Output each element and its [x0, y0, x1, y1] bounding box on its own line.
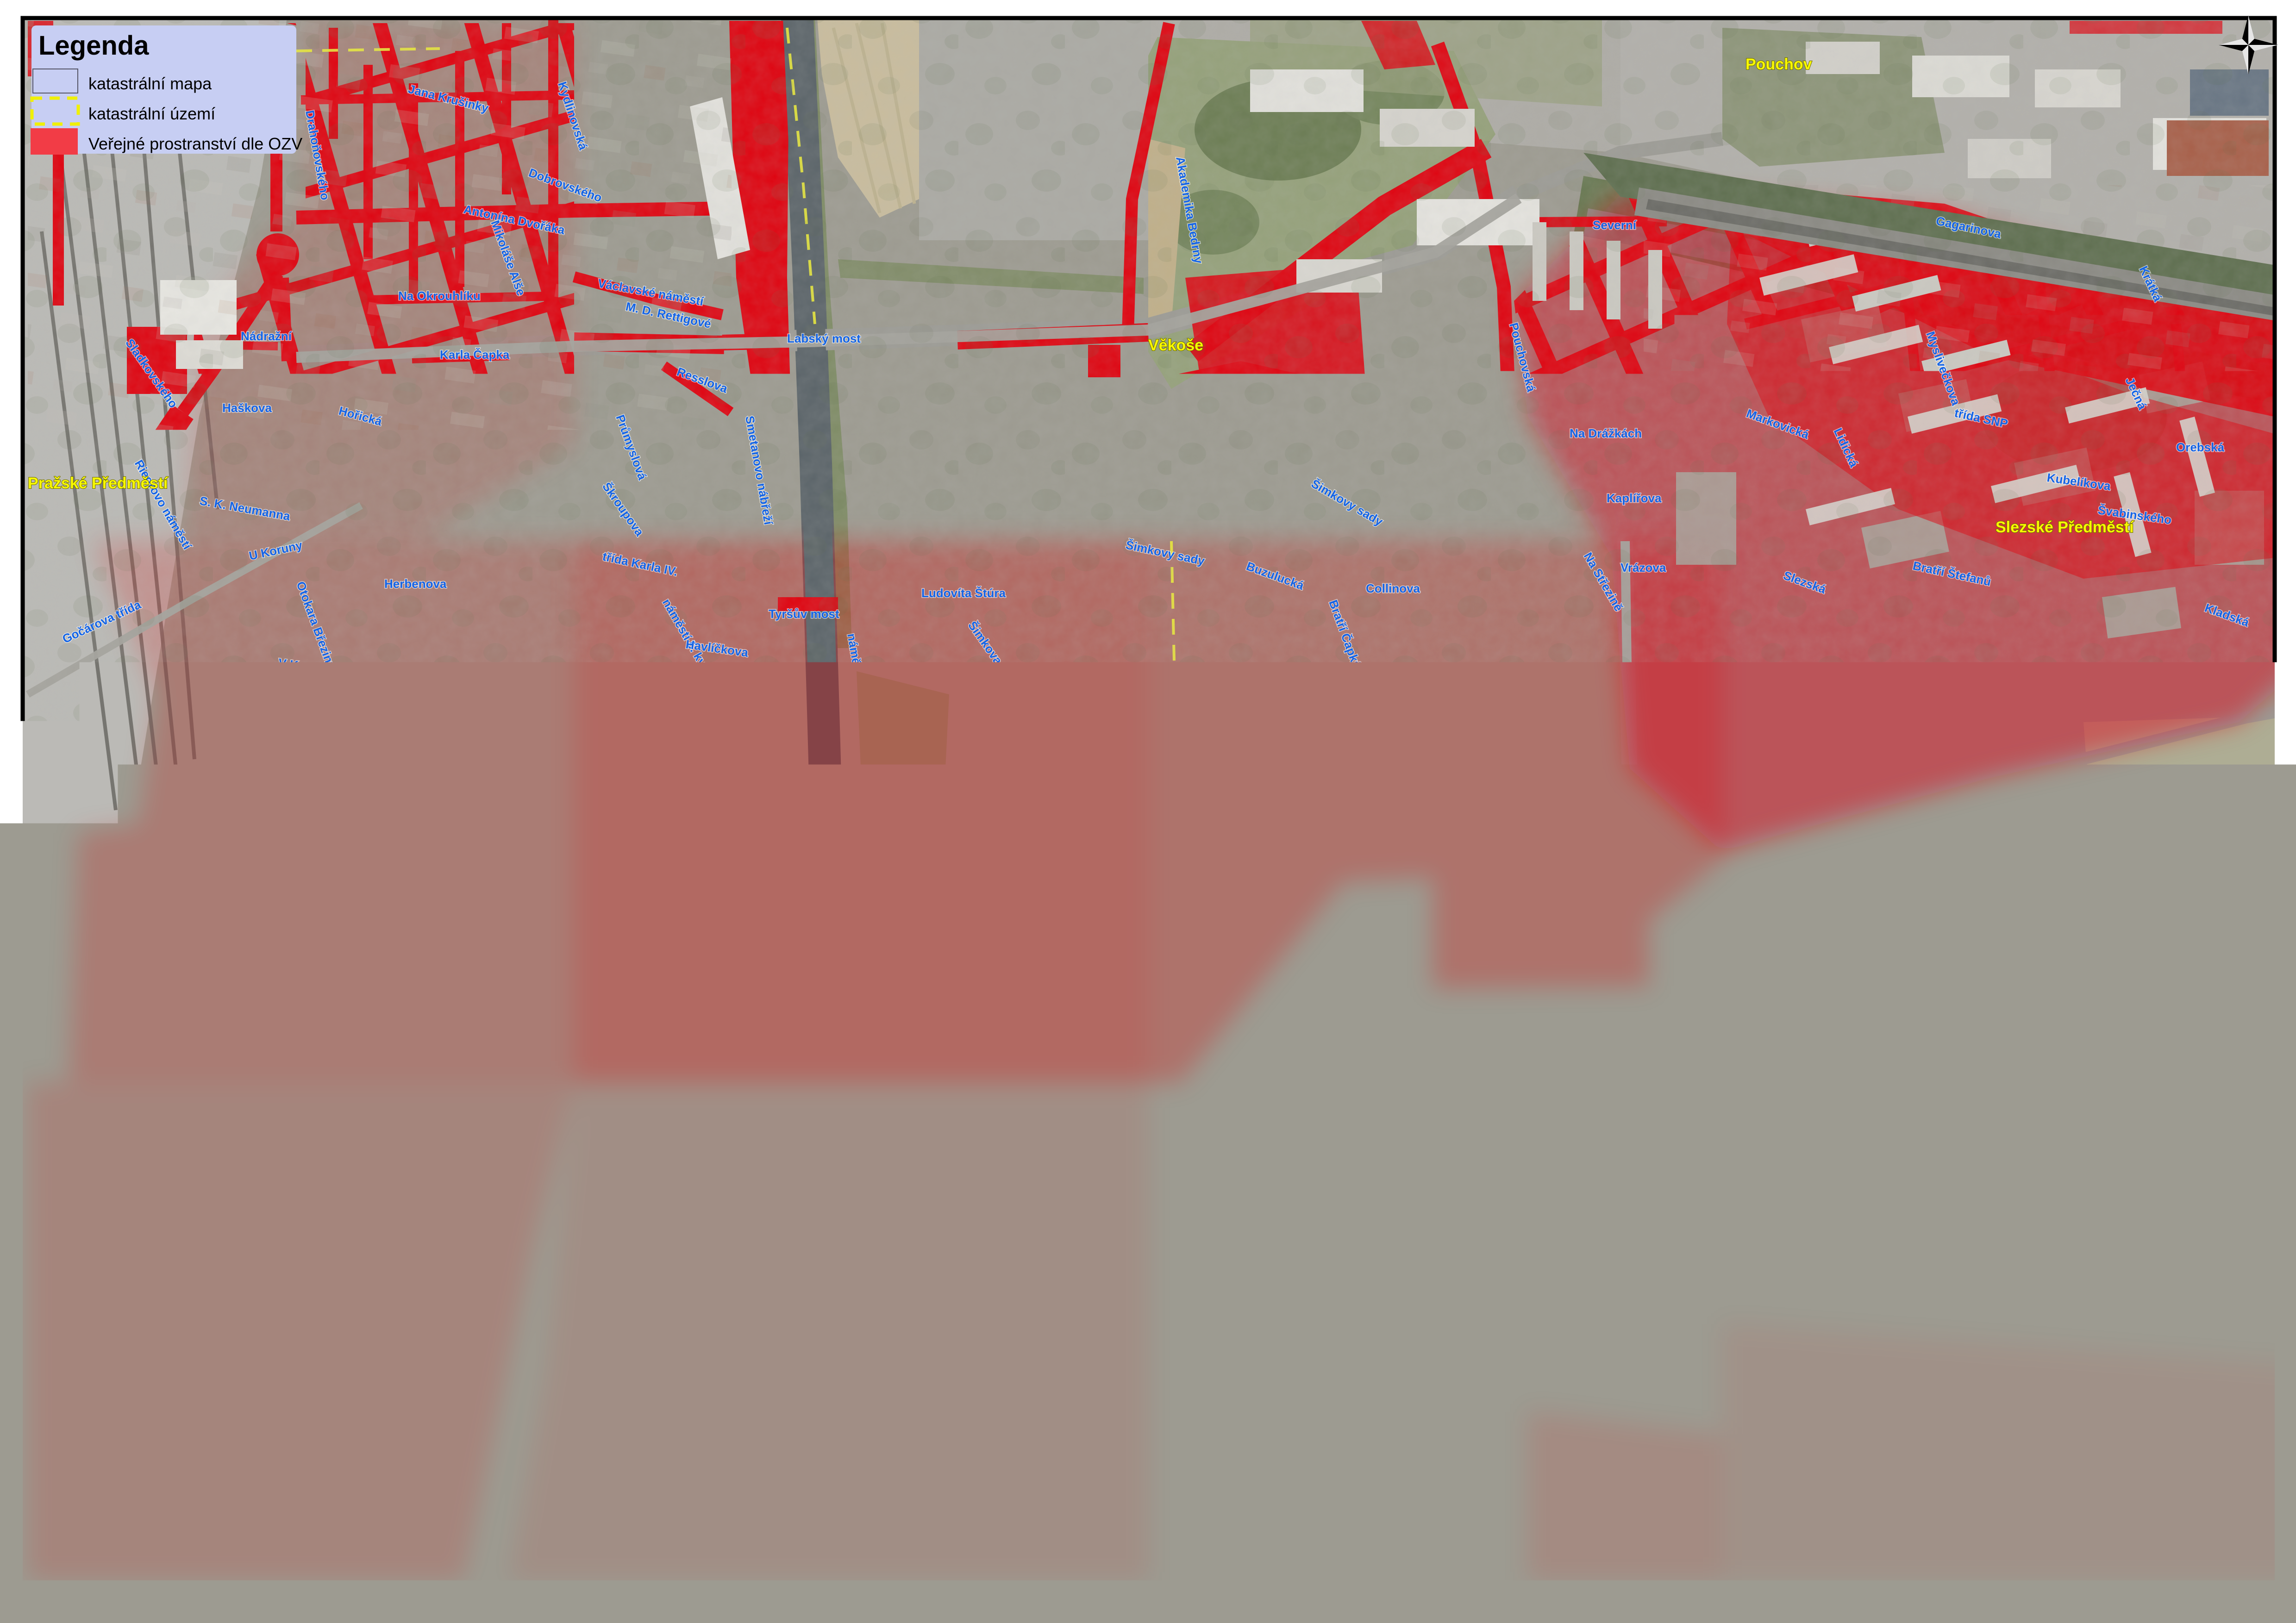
svg-text:Na Okrouhlíku: Na Okrouhlíku [398, 289, 481, 303]
svg-text:Čechova: Čechova [301, 892, 351, 905]
svg-text:Vachkova: Vachkova [1530, 1579, 1566, 1623]
svg-text:Víta Nejedlého: Víta Nejedlého [1505, 857, 1588, 871]
svg-text:Tyršův most: Tyršův most [769, 607, 839, 621]
svg-text:U Kavalíru: U Kavalíru [1315, 885, 1375, 899]
svg-text:Veřejné prostranství dle OZV: Veřejné prostranství dle OZV [88, 134, 302, 153]
svg-text:Líznerova: Líznerova [1908, 1394, 1964, 1408]
svg-text:Labský most: Labský most [787, 331, 861, 345]
svg-text:Na Drážkách: Na Drážkách [1570, 426, 1642, 440]
svg-text:Foerstrova: Foerstrova [116, 1054, 178, 1067]
svg-text:Věkoše: Věkoše [1148, 337, 1203, 354]
svg-text:Uzavřená: Uzavřená [1565, 815, 1619, 829]
svg-text:Haškova: Haškova [222, 401, 272, 415]
svg-text:sady architekta Lisky: sady architekta Lisky [426, 851, 548, 865]
svg-text:Sokolská: Sokolská [903, 1454, 956, 1468]
svg-text:Orebská: Orebská [2176, 440, 2225, 454]
svg-text:Příloha č. 9 - Hradec Králové: Příloha č. 9 - Hradec Králové - k. ú. Hr… [1005, 1592, 1484, 1615]
svg-text:0,75: 0,75 [473, 1583, 515, 1607]
svg-text:Sportovní: Sportovní [2241, 1199, 2296, 1213]
svg-text:Chmelova: Chmelova [806, 945, 863, 959]
svg-text:Růženy Jesenské: Růženy Jesenské [2005, 1241, 2105, 1255]
svg-text:Pivovarské náměstí: Pivovarské náměstí [870, 1033, 983, 1047]
svg-text:Kaplířova: Kaplířova [1607, 491, 1662, 505]
svg-text:Pouchov: Pouchov [1745, 56, 1812, 73]
svg-text:Úprkova: Úprkova [1884, 1338, 1933, 1352]
svg-text:Pražský most: Pražský most [778, 829, 856, 843]
svg-text:Ludovíta Štúra: Ludovíta Štúra [921, 586, 1006, 600]
svg-text:Malšovice u Hradce Králové: Malšovice u Hradce Králové [1408, 1257, 1617, 1274]
svg-text:Sukova: Sukova [2046, 1477, 2090, 1491]
svg-text:Karla Tomana: Karla Tomana [968, 894, 1047, 908]
svg-text:Vrázova: Vrázova [1620, 561, 1666, 574]
svg-text:km: km [660, 1555, 688, 1579]
svg-text:Nádražní: Nádražní [241, 329, 292, 343]
svg-text:Severní: Severní [1593, 218, 1637, 232]
svg-text:Nový Hradec Králové: Nový Hradec Králové [653, 1504, 811, 1522]
svg-text:Adolfa Doležala: Adolfa Doležala [2204, 1542, 2294, 1556]
svg-text:Hradec Králové: Hradec Králové [375, 896, 490, 913]
svg-text:MMHK/OM2 10.2.2022: MMHK/OM2 10.2.2022 [2122, 1594, 2296, 1614]
svg-text:Polní: Polní [1778, 741, 1808, 755]
svg-text:Karla Čapka: Karla Čapka [440, 348, 510, 362]
svg-text:katastrální mapa: katastrální mapa [88, 74, 212, 93]
svg-text:Legenda: Legenda [38, 31, 149, 61]
svg-text:0,5: 0,5 [324, 1583, 354, 1607]
svg-text:Kaštanová: Kaštanová [2014, 1398, 2075, 1412]
svg-text:Nerudova: Nerudova [194, 757, 250, 771]
svg-text:Dlouhá: Dlouhá [1044, 767, 1085, 780]
svg-text:Pavla Hanuše: Pavla Hanuše [130, 885, 208, 899]
svg-text:Pražské Předměstí: Pražské Předměstí [28, 474, 169, 492]
svg-text:Herbenova: Herbenova [384, 577, 447, 591]
svg-text:0: 0 [22, 1583, 34, 1607]
svg-text:Slezské Předměstí: Slezské Předměstí [1996, 518, 2134, 536]
svg-text:U Soudu: U Soudu [1273, 815, 1323, 829]
svg-text:17. listopadu: 17. listopadu [1009, 1410, 1083, 1424]
svg-text:1: 1 [647, 1583, 659, 1607]
svg-text:0,25: 0,25 [160, 1583, 201, 1607]
svg-text:katastrální území: katastrální území [88, 104, 215, 123]
svg-text:0,125: 0,125 [76, 1583, 129, 1607]
svg-text:nábřeží U přívozu: nábřeží U přívozu [741, 1132, 841, 1146]
svg-text:Collinova: Collinova [1366, 581, 1420, 595]
svg-text:Zákrejsova: Zákrejsova [1903, 1491, 1966, 1505]
